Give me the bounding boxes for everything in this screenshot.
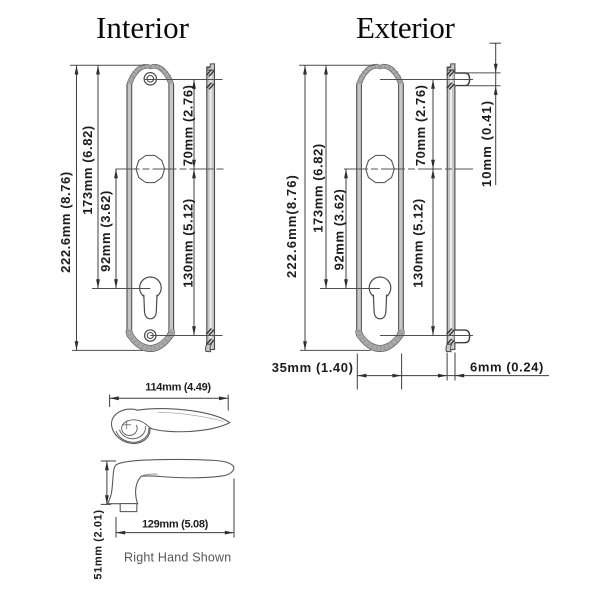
svg-text:70mm (2.76): 70mm (2.76) (180, 84, 195, 166)
svg-text:35mm (1.40): 35mm (1.40) (272, 360, 354, 375)
svg-text:130mm (5.12): 130mm (5.12) (180, 198, 195, 288)
svg-text:10mm (0.41): 10mm (0.41) (479, 100, 494, 187)
svg-text:92mm (3.62): 92mm (3.62) (332, 189, 347, 271)
svg-text:222.6mm(8.76): 222.6mm(8.76) (284, 174, 299, 278)
svg-text:222.6mm (8.76): 222.6mm (8.76) (58, 171, 73, 273)
svg-text:Exterior: Exterior (356, 10, 455, 45)
svg-text:Right Hand Shown: Right Hand Shown (124, 551, 231, 565)
svg-text:6mm (0.24): 6mm (0.24) (470, 360, 544, 375)
svg-text:Interior: Interior (96, 10, 190, 45)
svg-text:70mm (2.76): 70mm (2.76) (413, 84, 428, 166)
svg-text:173mm (6.82): 173mm (6.82) (80, 125, 95, 215)
svg-text:173mm (6.82): 173mm (6.82) (311, 143, 326, 233)
svg-text:114mm (4.49): 114mm (4.49) (145, 382, 211, 394)
svg-text:130mm (5.12): 130mm (5.12) (410, 198, 425, 288)
svg-text:129mm (5.08): 129mm (5.08) (142, 518, 209, 530)
svg-text:51mm (2.01): 51mm (2.01) (93, 509, 105, 579)
svg-text:92mm (3.62): 92mm (3.62) (98, 190, 113, 272)
